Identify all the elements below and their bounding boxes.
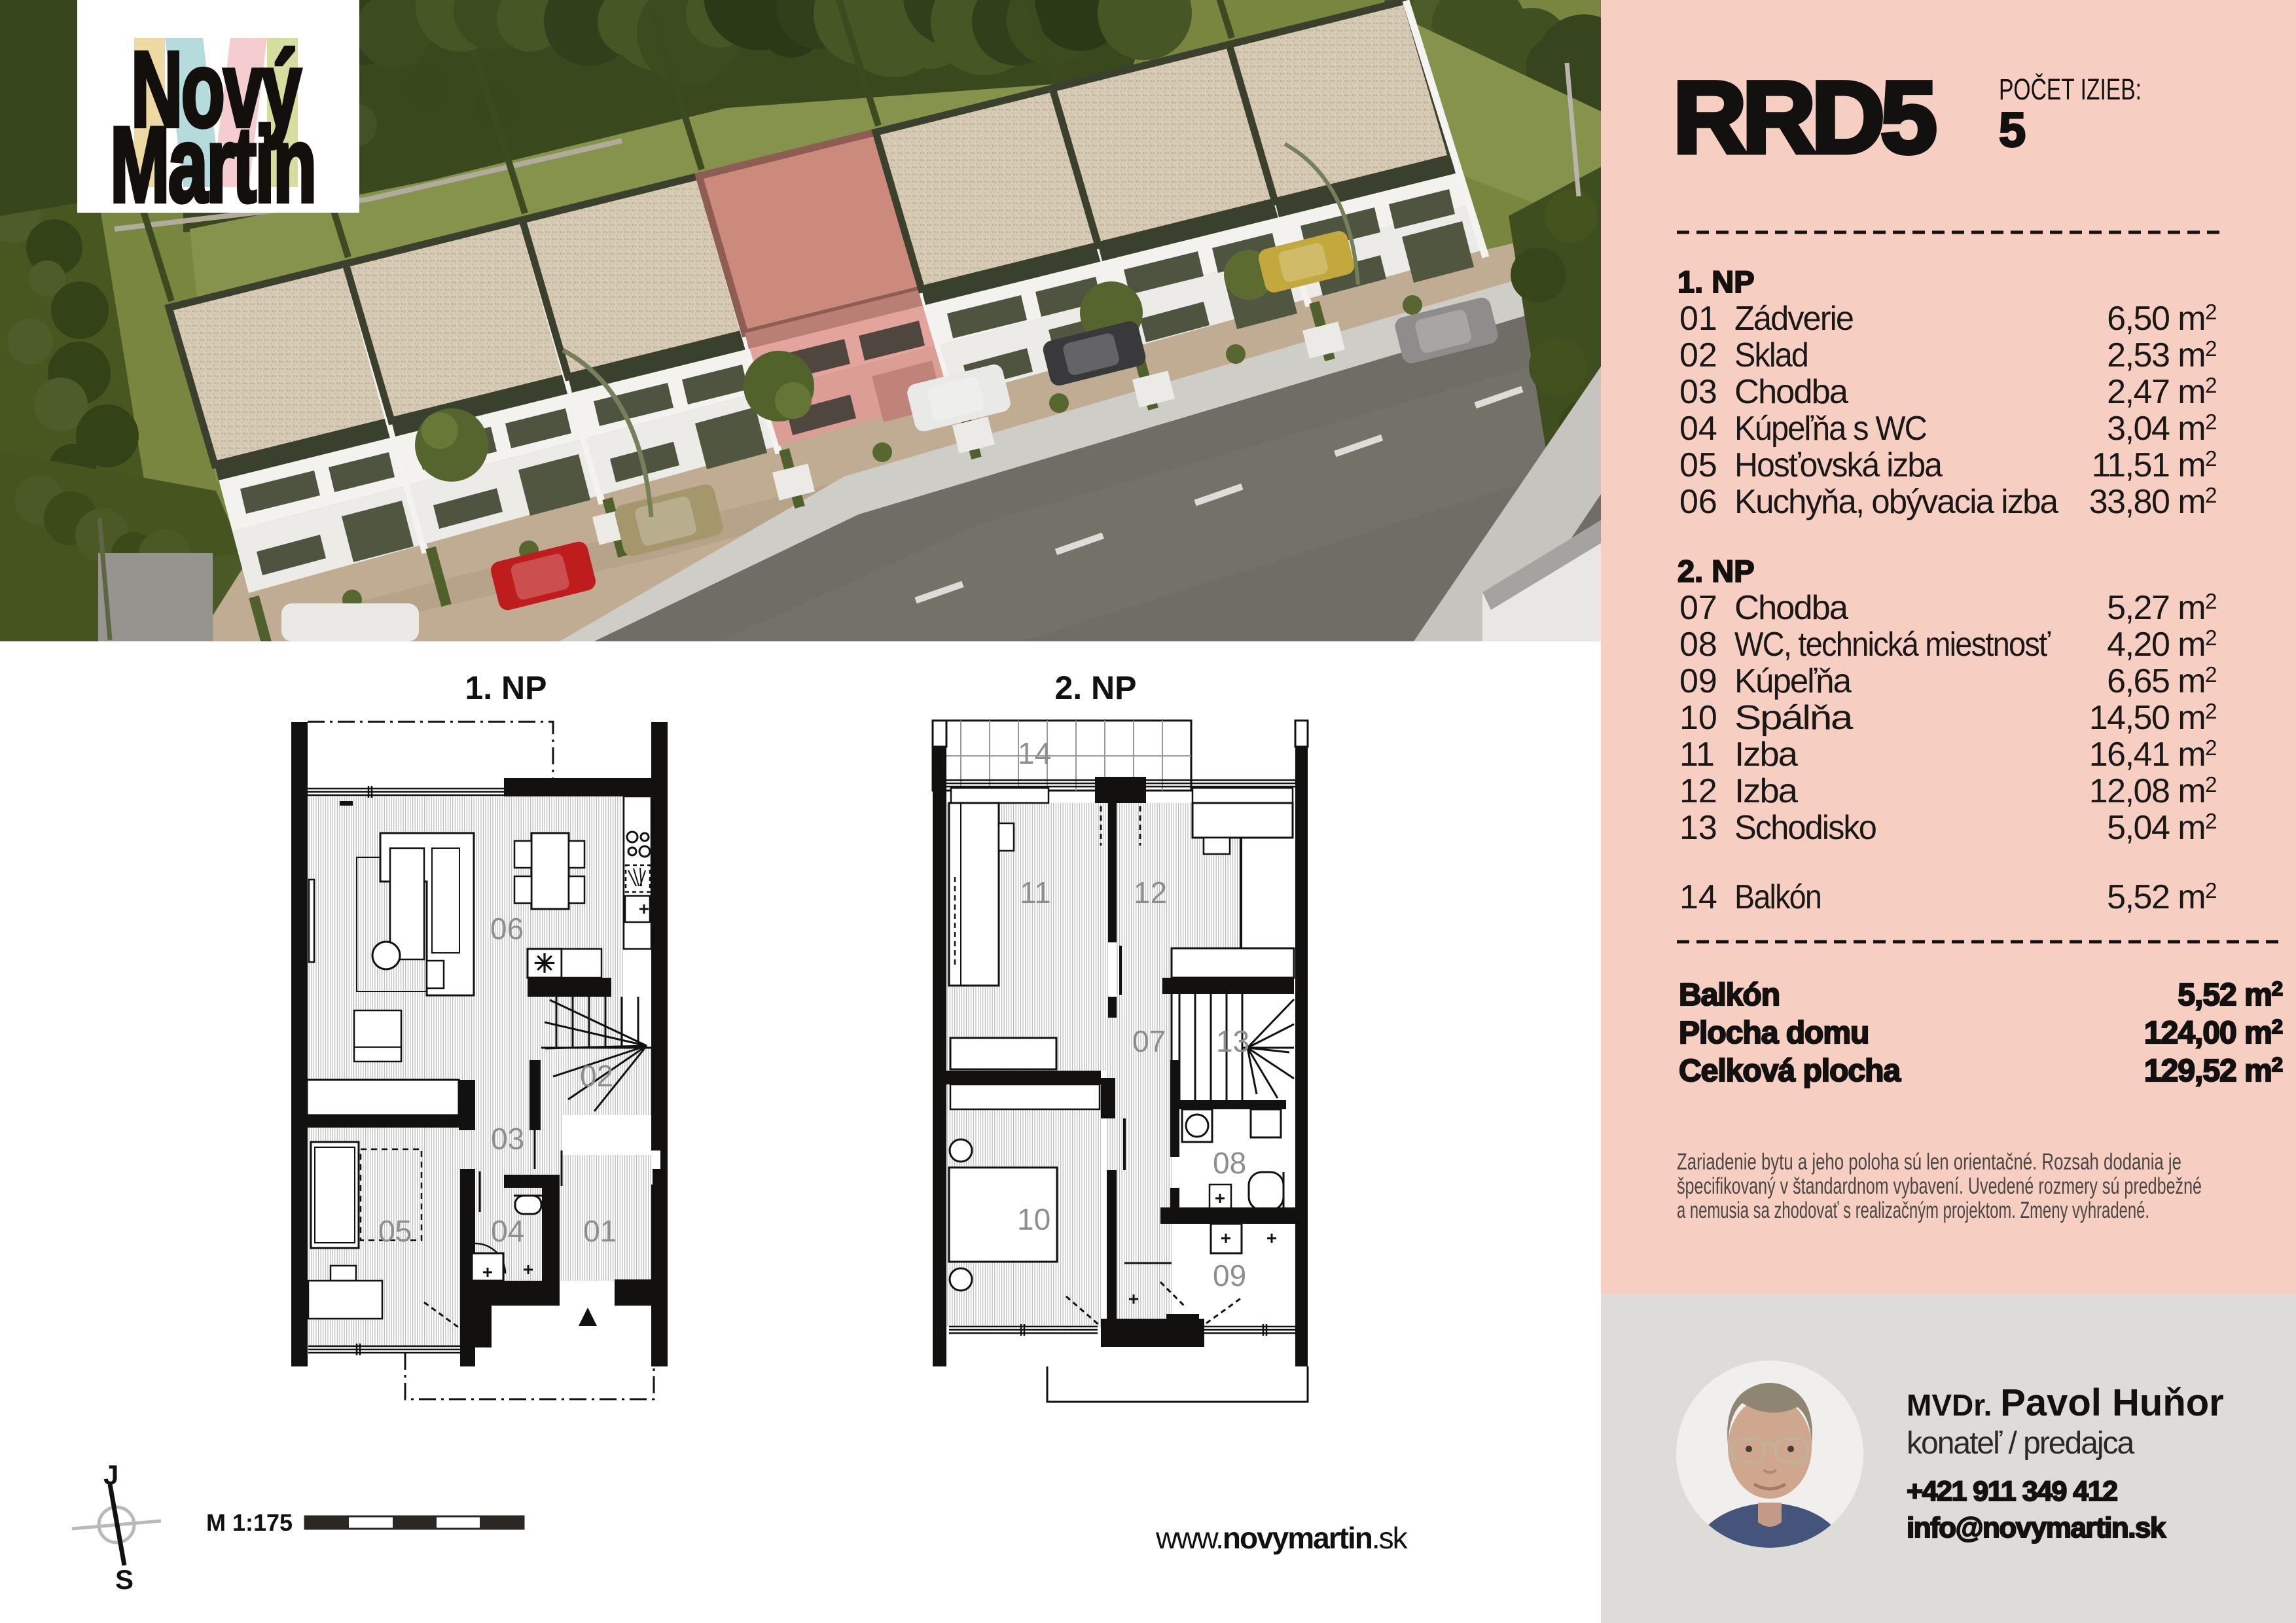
svg-text:124,00 m2: 124,00 m2 <box>2144 1015 2282 1050</box>
svg-text:konateľ / predajca: konateľ / predajca <box>1907 1426 2135 1461</box>
svg-text:07: 07 <box>1132 1024 1166 1058</box>
svg-text:5,27 m2: 5,27 m2 <box>2107 589 2216 627</box>
svg-text:5,52 m2: 5,52 m2 <box>2178 977 2282 1012</box>
svg-text:Chodba: Chodba <box>1734 373 1848 411</box>
svg-text:RRD5: RRD5 <box>1673 61 1935 175</box>
svg-text:08: 08 <box>1679 626 1717 664</box>
svg-text:33,80 m2: 33,80 m2 <box>2089 483 2216 521</box>
svg-text:04: 04 <box>1679 410 1717 448</box>
svg-text:1. NP: 1. NP <box>1677 264 1755 299</box>
svg-text:a nemusia sa zhodovať s realiz: a nemusia sa zhodovať s realizačným proj… <box>1677 1198 2149 1223</box>
svg-text:14: 14 <box>1679 878 1717 916</box>
svg-text:13: 13 <box>1679 809 1717 847</box>
svg-text:Plocha domu: Plocha domu <box>1679 1016 1869 1050</box>
svg-text:02: 02 <box>1679 336 1717 374</box>
svg-text:Celková plocha: Celková plocha <box>1679 1054 1901 1088</box>
svg-text:2. NP: 2. NP <box>1677 554 1755 588</box>
svg-text:6,50 m2: 6,50 m2 <box>2107 300 2216 338</box>
svg-text:5,52 m2: 5,52 m2 <box>2107 878 2216 916</box>
svg-text:12: 12 <box>1134 876 1167 910</box>
svg-text:5: 5 <box>1999 103 2026 157</box>
svg-text:Kuchyňa, obývacia izba: Kuchyňa, obývacia izba <box>1734 483 2058 521</box>
svg-text:Kúpeľňa s WC: Kúpeľňa s WC <box>1734 410 1926 448</box>
svg-text:+421 911 349 412: +421 911 349 412 <box>1907 1476 2117 1507</box>
svg-text:2,47 m2: 2,47 m2 <box>2107 373 2216 411</box>
svg-text:MVDr. Pavol Huňor: MVDr. Pavol Huňor <box>1907 1382 2224 1424</box>
svg-text:Izba: Izba <box>1734 736 1798 774</box>
svg-text:05: 05 <box>1679 446 1717 484</box>
svg-text:14: 14 <box>1018 736 1051 770</box>
svg-text:Zádverie: Zádverie <box>1734 300 1853 338</box>
svg-text:07: 07 <box>1679 589 1717 627</box>
svg-text:1. NP: 1. NP <box>465 669 547 706</box>
svg-text:04: 04 <box>491 1214 524 1248</box>
svg-text:03: 03 <box>491 1122 524 1156</box>
svg-text:4,20 m2: 4,20 m2 <box>2107 626 2216 664</box>
svg-text:Spálňa: Spálňa <box>1734 699 1853 737</box>
svg-text:09: 09 <box>1679 662 1717 700</box>
svg-text:08: 08 <box>1213 1146 1246 1180</box>
svg-text:info@novymartin.sk: info@novymartin.sk <box>1907 1512 2166 1544</box>
svg-text:10: 10 <box>1679 699 1717 737</box>
svg-text:Sklad: Sklad <box>1734 336 1808 374</box>
svg-text:11,51 m2: 11,51 m2 <box>2092 446 2217 484</box>
svg-text:02: 02 <box>580 1059 613 1093</box>
svg-text:03: 03 <box>1679 373 1717 411</box>
svg-text:06: 06 <box>490 912 524 946</box>
svg-text:J: J <box>103 1459 118 1490</box>
svg-text:14,50 m2: 14,50 m2 <box>2089 699 2216 737</box>
svg-text:11: 11 <box>1679 736 1715 774</box>
svg-text:Izba: Izba <box>1734 772 1798 810</box>
svg-text:6,65 m2: 6,65 m2 <box>2107 662 2216 700</box>
svg-text:13: 13 <box>1216 1024 1249 1058</box>
svg-text:16,41 m2: 16,41 m2 <box>2089 736 2216 774</box>
svg-text:09: 09 <box>1213 1258 1246 1293</box>
svg-text:05: 05 <box>378 1214 412 1248</box>
svg-text:Chodba: Chodba <box>1734 589 1848 627</box>
svg-text:3,04 m2: 3,04 m2 <box>2107 410 2216 448</box>
svg-text:špecifikovaný v štandardnom vy: špecifikovaný v štandardnom vybavení. Uv… <box>1677 1173 2202 1199</box>
svg-text:12,08 m2: 12,08 m2 <box>2089 772 2216 810</box>
svg-text:www.novymartin.sk: www.novymartin.sk <box>1155 1521 1408 1555</box>
svg-text:Hosťovská izba: Hosťovská izba <box>1734 446 1943 484</box>
svg-text:POČET IZIEB:: POČET IZIEB: <box>1999 73 2142 106</box>
svg-text:M 1:175: M 1:175 <box>206 1509 293 1536</box>
svg-text:Balkón: Balkón <box>1679 978 1780 1012</box>
svg-text:2,53 m2: 2,53 m2 <box>2107 336 2216 374</box>
svg-text:Zariadenie bytu a jeho poloha: Zariadenie bytu a jeho poloha sú len ori… <box>1677 1149 2181 1175</box>
svg-text:S: S <box>115 1564 134 1595</box>
svg-text:✳: ✳ <box>533 950 556 978</box>
svg-text:129,52 m2: 129,52 m2 <box>2144 1053 2282 1088</box>
svg-text:10: 10 <box>1017 1202 1050 1236</box>
svg-text:12: 12 <box>1679 772 1717 810</box>
svg-text:5,04 m2: 5,04 m2 <box>2107 809 2216 847</box>
svg-text:01: 01 <box>1679 300 1717 338</box>
svg-text:Balkón: Balkón <box>1734 878 1821 916</box>
svg-text:2. NP: 2. NP <box>1054 669 1136 706</box>
svg-text:06: 06 <box>1679 483 1717 521</box>
svg-text:11: 11 <box>1020 876 1051 910</box>
svg-text:Kúpeľňa: Kúpeľňa <box>1734 662 1852 700</box>
svg-text:01: 01 <box>583 1214 617 1248</box>
svg-text:WC, technická miestnosť: WC, technická miestnosť <box>1734 626 2051 664</box>
svg-text:Martin: Martin <box>110 105 315 224</box>
svg-text:Schodisko: Schodisko <box>1734 809 1876 847</box>
